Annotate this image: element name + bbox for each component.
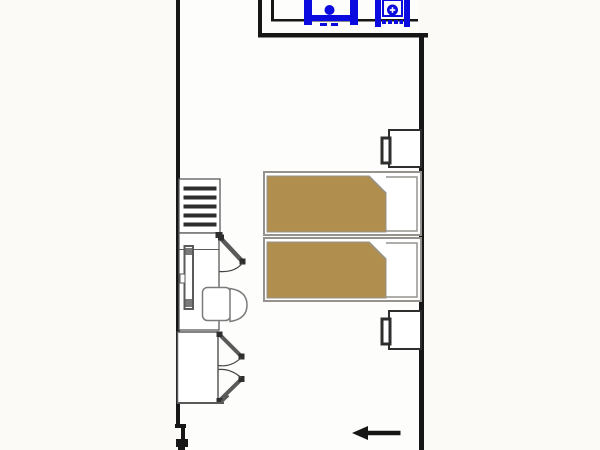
washbasin-dash	[394, 20, 398, 24]
sink-right-side	[350, 0, 358, 25]
floor-plan-svg	[0, 0, 600, 450]
left-wall-jog-top	[175, 424, 186, 428]
left-wall-jog-foot	[176, 439, 188, 447]
washbasin-dash	[382, 20, 386, 24]
door-hinge	[217, 332, 223, 338]
drain-cross	[390, 9, 396, 11]
slat	[184, 214, 217, 218]
sink-left-side	[304, 0, 312, 25]
twin-bed-lower	[264, 238, 421, 301]
floor-plan	[0, 0, 600, 450]
desk-chair	[203, 288, 248, 322]
sink-basin-bottom	[304, 15, 358, 21]
wall-tab	[180, 274, 185, 283]
sink-drain-icon	[325, 5, 335, 15]
chair-seat	[203, 288, 231, 321]
slat	[184, 205, 217, 209]
twin-bed-upper	[264, 172, 421, 235]
washbasin-right-side	[404, 0, 410, 27]
slat	[184, 196, 217, 200]
slat	[184, 223, 217, 227]
blanket	[267, 176, 386, 232]
nightstand-body	[389, 311, 421, 349]
washbasin-dash	[400, 20, 404, 24]
sink-dash	[320, 23, 327, 26]
radiator-cap-top	[186, 248, 193, 255]
door-leaf-cap	[218, 235, 224, 241]
nightstand-handle	[382, 319, 390, 344]
slat	[184, 187, 217, 191]
nightstand-handle	[382, 138, 390, 163]
nightstand-body	[389, 130, 421, 167]
wardrobe-body	[178, 332, 219, 403]
blanket	[267, 242, 386, 298]
radiator-cap-bottom	[186, 299, 193, 307]
washbasin-left-side	[375, 0, 381, 27]
bathroom-wall-outer-horizontal	[258, 33, 428, 38]
sink-dash	[331, 23, 338, 26]
luggage-rack	[179, 179, 220, 233]
bathroom-wall-inner-vertical	[271, 0, 274, 21]
washbasin-dash	[388, 20, 392, 24]
bathroom-wall-outer-vertical	[258, 0, 262, 37]
